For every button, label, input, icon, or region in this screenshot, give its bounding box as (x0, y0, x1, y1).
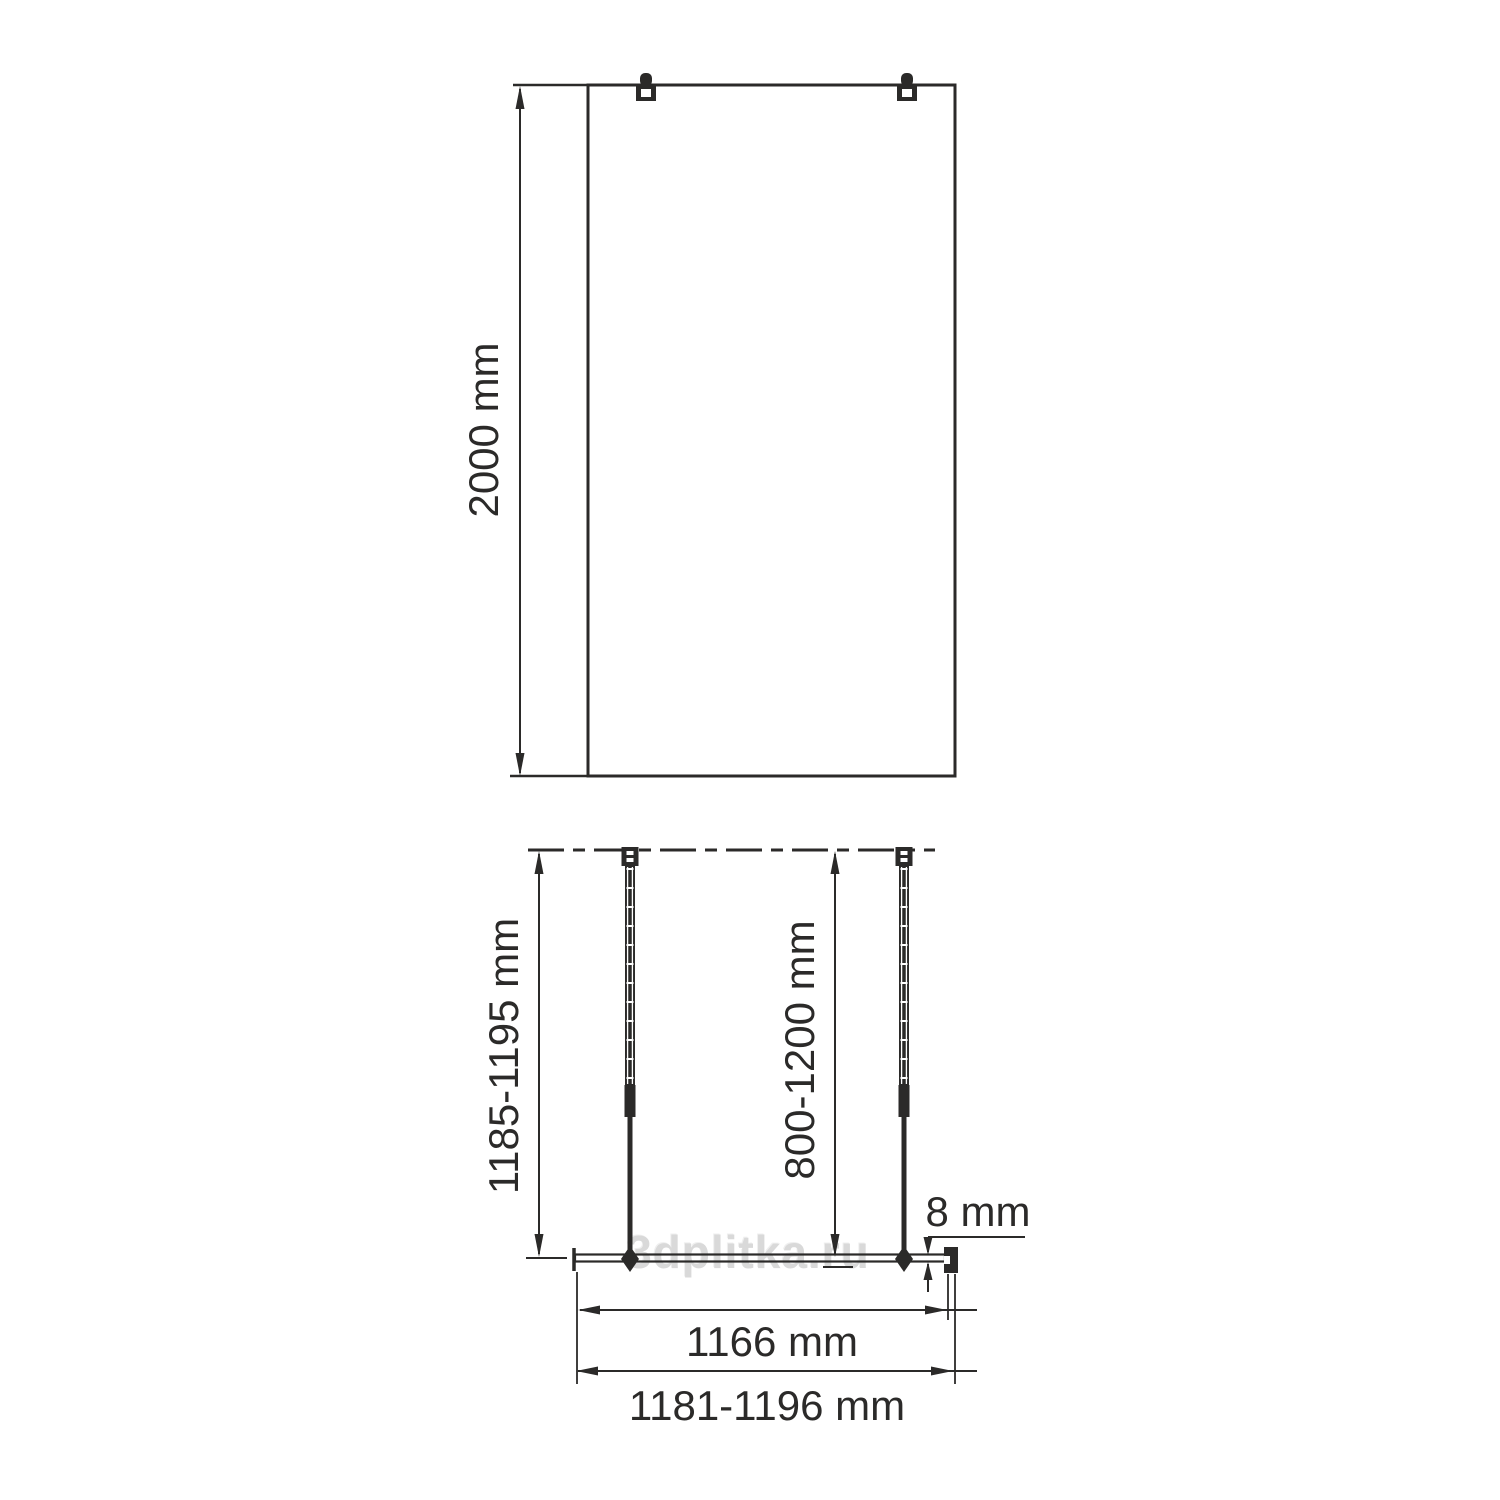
bar-coupler (625, 1085, 636, 1117)
glass-width-arrow-right-icon (925, 1306, 947, 1315)
bar-rod (628, 1117, 633, 1252)
bracket-slot (641, 89, 651, 97)
support-bar-left (621, 847, 639, 1272)
overall-width-label: 1181-1196 mm (629, 1385, 905, 1427)
bar-wall-fitting (622, 847, 639, 866)
bar-span-arrow-down-icon (535, 1234, 544, 1257)
glass-panel-outline (588, 85, 955, 776)
bar-tube (625, 866, 635, 1085)
overall-width-arrow-left-icon (576, 1367, 598, 1376)
fitting-slot-2 (901, 858, 908, 862)
bar-span-label: 1185-1195 mm (483, 918, 525, 1194)
diagram-linework (0, 0, 1500, 1500)
height-dim-arrow-up-icon (516, 86, 525, 109)
bar-tube (899, 866, 909, 1085)
glass-width-arrow-left-icon (578, 1306, 600, 1315)
height-dim-arrow-down-icon (516, 753, 525, 776)
fitting-slot-1 (627, 851, 634, 855)
wall-profile-right (944, 1247, 958, 1273)
thickness-arrow-down-icon (924, 1237, 933, 1255)
fitting-slot-1 (901, 851, 908, 855)
support-bar-right (895, 847, 913, 1272)
bar-adjust-label: 800-1200 mm (779, 920, 821, 1179)
glass-width-label: 1166 mm (686, 1321, 858, 1363)
bracket-slot (902, 89, 912, 97)
bar-glass-clamp (895, 1246, 913, 1272)
front-view (510, 73, 955, 776)
shower-screen-drawing: 3dplitka.ru (0, 0, 1500, 1500)
bar-glass-clamp (621, 1246, 639, 1272)
thickness-dim (924, 1237, 1026, 1292)
wall-profile-notch (944, 1256, 950, 1264)
wall-bracket-right (897, 73, 917, 101)
bar-coupler (899, 1085, 910, 1117)
wall-bracket-left (636, 73, 656, 101)
bar-span-arrow-up-icon (535, 851, 544, 874)
bar-adjust-arrow-up-icon (831, 851, 840, 874)
front-height-label: 2000 mm (463, 342, 505, 517)
bar-rod (902, 1117, 907, 1252)
fitting-slot-2 (627, 858, 634, 862)
bar-wall-fitting (896, 847, 913, 866)
glass-thickness-label: 8 mm (926, 1191, 1031, 1233)
overall-width-arrow-right-icon (931, 1367, 953, 1376)
